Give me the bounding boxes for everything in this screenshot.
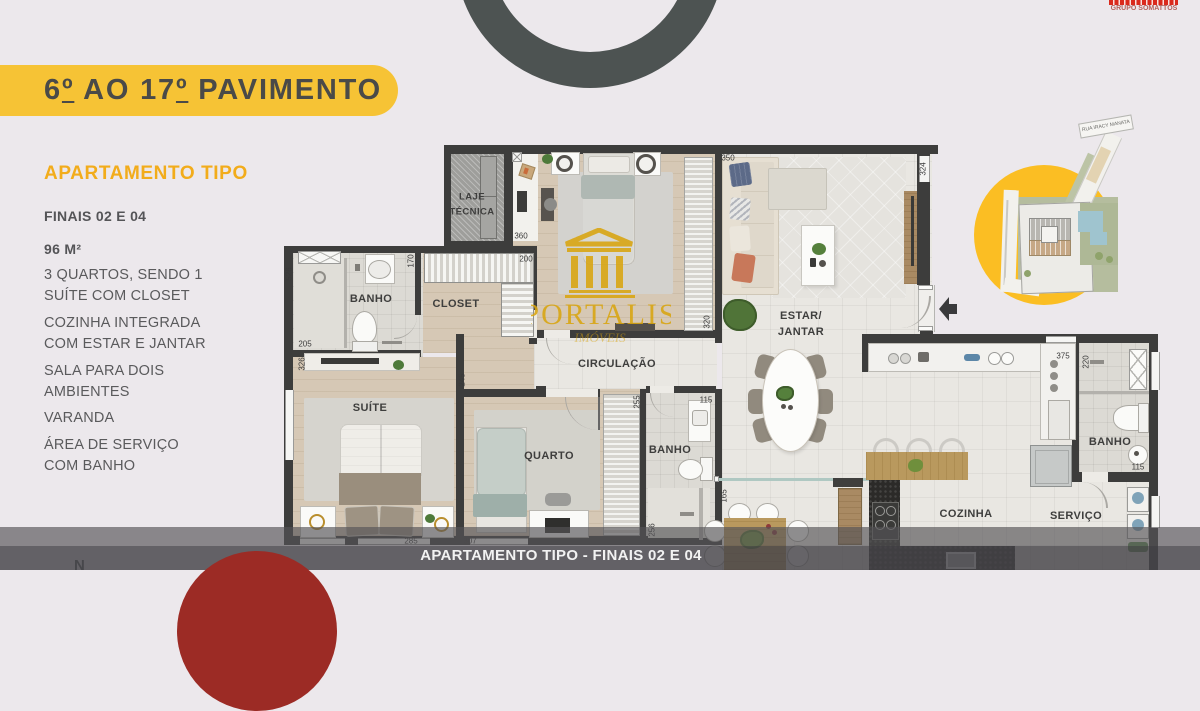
svg-text:IMÓVEIS: IMÓVEIS xyxy=(573,330,626,345)
svg-text:PORTALIS: PORTALIS xyxy=(531,298,671,331)
